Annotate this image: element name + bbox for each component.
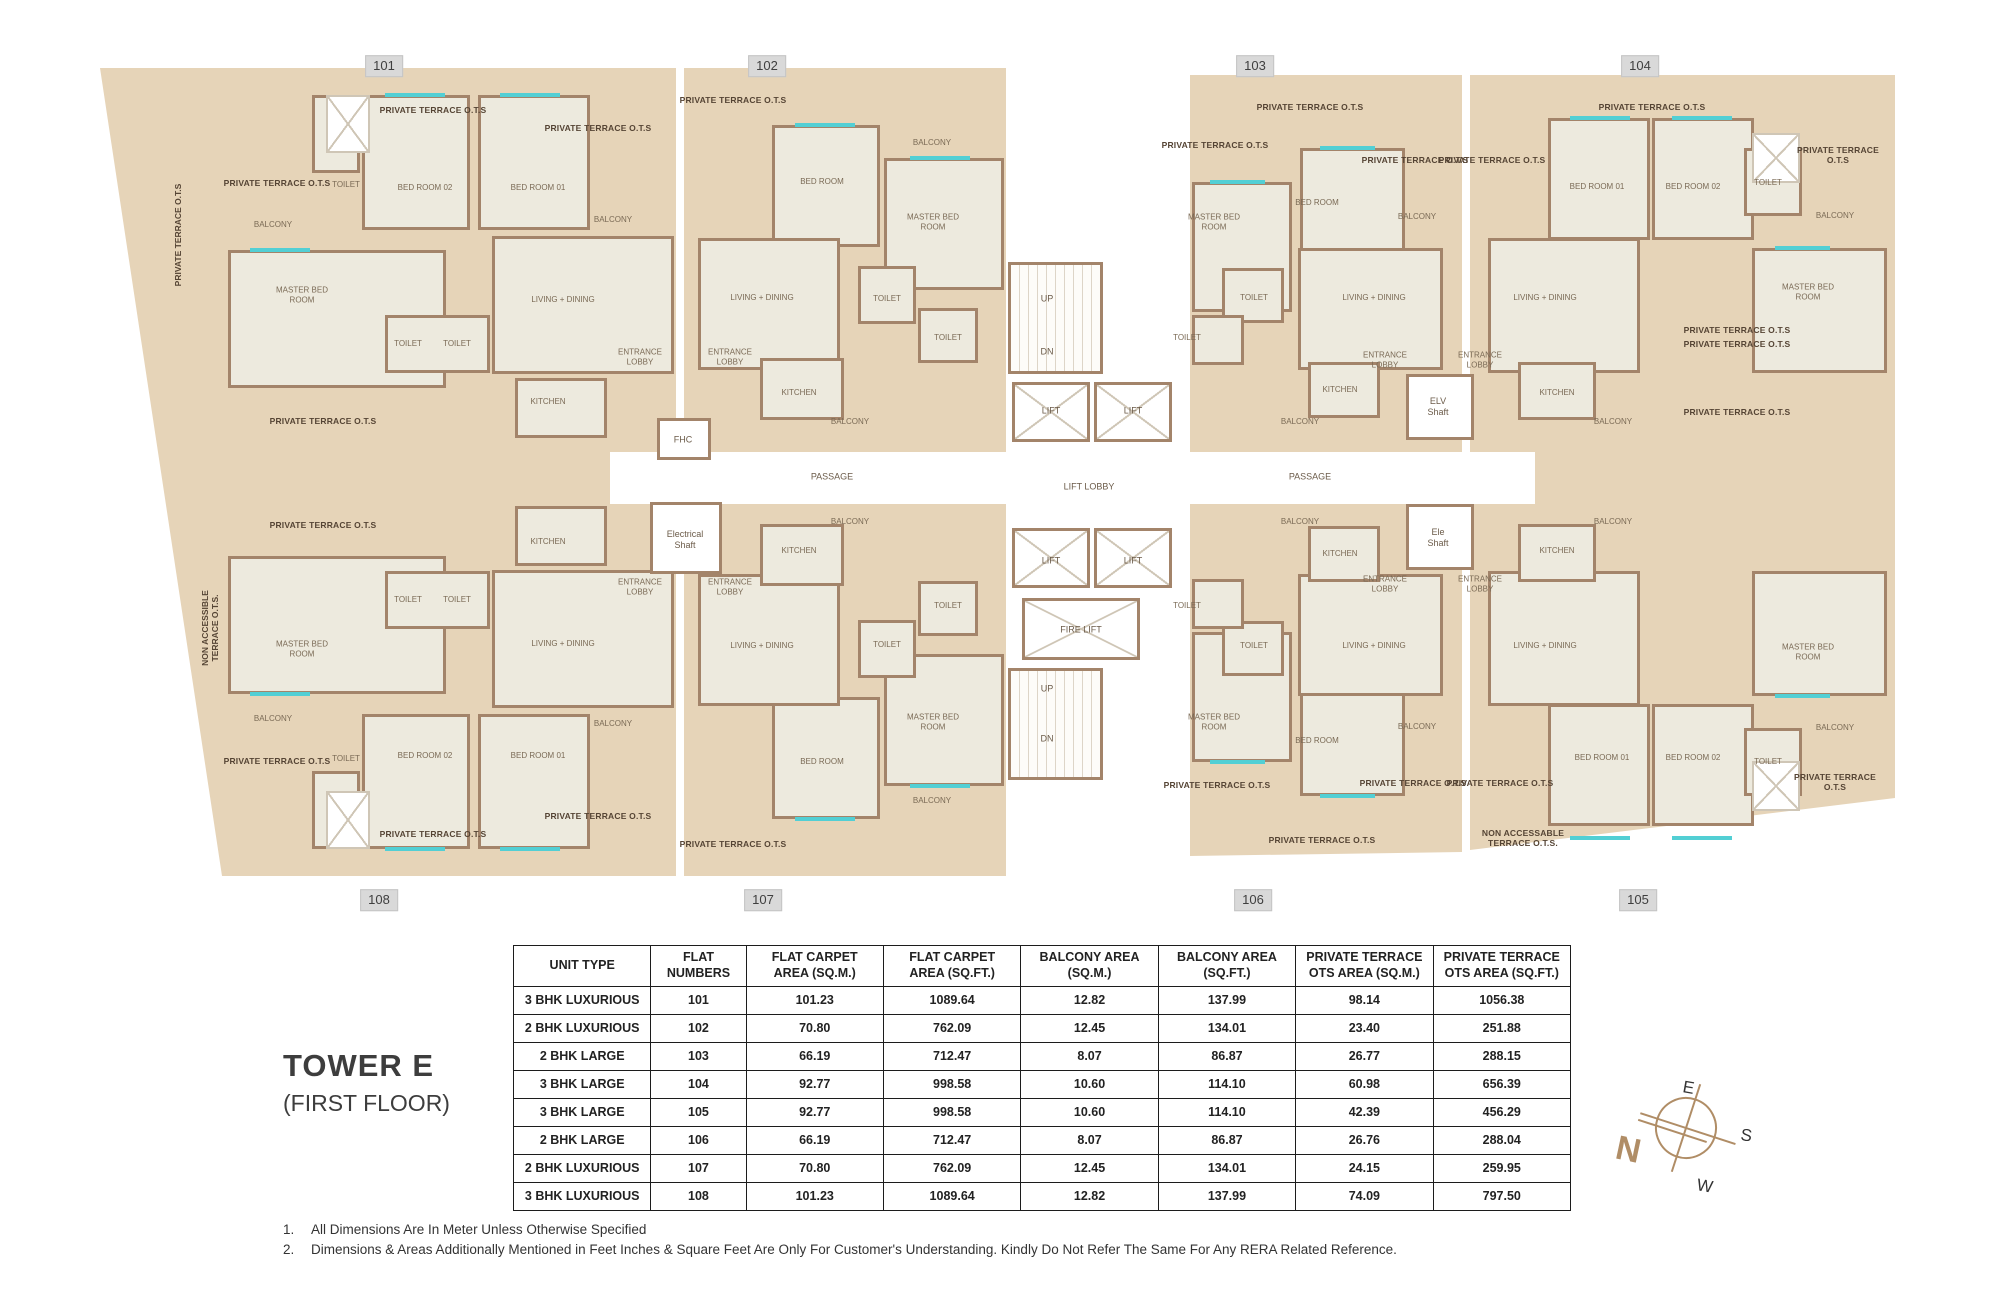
room-label: PRIVATE TERRACE O.T.S bbox=[1439, 155, 1546, 165]
window-strip bbox=[910, 784, 970, 788]
table-cell: 105 bbox=[651, 1099, 746, 1127]
room-label: BED ROOM 01 bbox=[1570, 182, 1625, 192]
table-cell: 797.50 bbox=[1433, 1183, 1570, 1211]
room-label: PRIVATE TERRACE O.T.S bbox=[380, 105, 487, 115]
table-row: 3 BHK LARGE10492.77998.5810.60114.1060.9… bbox=[514, 1071, 1571, 1099]
plan-block bbox=[326, 95, 370, 153]
room-block bbox=[478, 95, 590, 230]
table-cell: 12.45 bbox=[1021, 1155, 1158, 1183]
compass-n: N bbox=[1612, 1129, 1644, 1171]
room-label: MASTER BED ROOM bbox=[1188, 712, 1240, 731]
room-label: LIVING + DINING bbox=[531, 639, 594, 649]
room-label: PRIVATE TERRACE O.T.S bbox=[270, 520, 377, 530]
table-header-cell: FLAT NUMBERS bbox=[651, 946, 746, 987]
room-label: FHC bbox=[674, 435, 693, 446]
room-block bbox=[1652, 704, 1754, 826]
room-label: BALCONY bbox=[594, 719, 632, 729]
flat-number-badge: 108 bbox=[360, 889, 398, 911]
table-cell: 1089.64 bbox=[883, 987, 1020, 1015]
table-cell: 762.09 bbox=[883, 1015, 1020, 1043]
room-label: MASTER BED ROOM bbox=[1782, 642, 1834, 661]
room-label: KITCHEN bbox=[530, 397, 565, 407]
room-label: MASTER BED ROOM bbox=[1188, 212, 1240, 231]
room-label: LIVING + DINING bbox=[1513, 293, 1576, 303]
table-cell: 12.82 bbox=[1021, 987, 1158, 1015]
window-strip bbox=[500, 93, 560, 97]
table-header-cell: FLAT CARPET AREA (SQ.M.) bbox=[746, 946, 883, 987]
table-cell: 26.77 bbox=[1296, 1043, 1433, 1071]
room-label: TOILET bbox=[1754, 757, 1782, 767]
plan-block bbox=[326, 791, 370, 849]
table-body: 3 BHK LUXURIOUS101101.231089.6412.82137.… bbox=[514, 987, 1571, 1211]
room-block bbox=[1548, 118, 1650, 240]
room-label: BALCONY bbox=[831, 417, 869, 427]
table-cell: 998.58 bbox=[883, 1071, 1020, 1099]
table-header-cell: FLAT CARPET AREA (SQ.FT.) bbox=[883, 946, 1020, 987]
footnotes: 1.All Dimensions Are In Meter Unless Oth… bbox=[283, 1222, 1397, 1262]
room-label: MASTER BED ROOM bbox=[276, 639, 328, 658]
room-label: BALCONY bbox=[1594, 517, 1632, 527]
table-cell: 104 bbox=[651, 1071, 746, 1099]
table-cell: 92.77 bbox=[746, 1071, 883, 1099]
footnote: 2.Dimensions & Areas Additionally Mentio… bbox=[283, 1242, 1397, 1257]
table-row: 3 BHK LARGE10592.77998.5810.60114.1042.3… bbox=[514, 1099, 1571, 1127]
room-label: PRIVATE TERRACE O.T.S bbox=[1684, 339, 1791, 349]
window-strip bbox=[1775, 694, 1830, 698]
room-label: MASTER BED ROOM bbox=[907, 712, 959, 731]
flat-number-badge: 101 bbox=[365, 55, 403, 77]
table-cell: 288.04 bbox=[1433, 1127, 1570, 1155]
room-label: PRIVATE TERRACE O.T.S bbox=[680, 839, 787, 849]
room-label: PRIVATE TERRACE O.T.S bbox=[1269, 835, 1376, 845]
window-strip bbox=[795, 123, 855, 127]
room-label: PRIVATE TERRACE O.T.S bbox=[224, 756, 331, 766]
room-block bbox=[515, 378, 607, 438]
table-cell: 2 BHK LARGE bbox=[514, 1043, 651, 1071]
room-label: UP bbox=[1041, 684, 1054, 695]
room-label: BALCONY bbox=[594, 215, 632, 225]
table-cell: 2 BHK LUXURIOUS bbox=[514, 1015, 651, 1043]
room-label: BED ROOM bbox=[1295, 198, 1339, 208]
room-block bbox=[478, 714, 590, 849]
table-cell: 3 BHK LUXURIOUS bbox=[514, 987, 651, 1015]
compass-rose: E S W N bbox=[1598, 1048, 1778, 1218]
room-label: BALCONY bbox=[913, 796, 951, 806]
room-label: FIRE LIFT bbox=[1060, 625, 1102, 636]
table-cell: 259.95 bbox=[1433, 1155, 1570, 1183]
room-label: PRIVATE TERRACE O.T.S bbox=[1599, 102, 1706, 112]
table-cell: 66.19 bbox=[746, 1127, 883, 1155]
room-label: TOILET bbox=[1173, 601, 1201, 611]
table-cell: 86.87 bbox=[1158, 1127, 1295, 1155]
room-label: BALCONY bbox=[1816, 211, 1854, 221]
table-cell: 114.10 bbox=[1158, 1071, 1295, 1099]
table-cell: 103 bbox=[651, 1043, 746, 1071]
window-strip bbox=[1570, 116, 1630, 120]
table-cell: 3 BHK LUXURIOUS bbox=[514, 1183, 651, 1211]
table-header-cell: PRIVATE TERRACE OTS AREA (SQ.M.) bbox=[1296, 946, 1433, 987]
room-label: ENTRANCE LOBBY bbox=[618, 577, 662, 596]
room-label: UP bbox=[1041, 294, 1054, 305]
table-cell: 12.82 bbox=[1021, 1183, 1158, 1211]
room-label: MASTER BED ROOM bbox=[276, 285, 328, 304]
table-cell: 106 bbox=[651, 1127, 746, 1155]
room-label: PRIVATE TERRACE O.T.S bbox=[680, 95, 787, 105]
table-header-cell: UNIT TYPE bbox=[514, 946, 651, 987]
room-block bbox=[1652, 118, 1754, 240]
room-label: DN bbox=[1041, 347, 1054, 358]
room-label: ENTRANCE LOBBY bbox=[1363, 574, 1407, 593]
window-strip bbox=[1210, 760, 1265, 764]
table-cell: 24.15 bbox=[1296, 1155, 1433, 1183]
room-label: TOILET bbox=[332, 754, 360, 764]
compass-w: W bbox=[1695, 1175, 1714, 1196]
room-label: BED ROOM bbox=[800, 757, 844, 767]
room-label: ENTRANCE LOBBY bbox=[618, 347, 662, 366]
room-label: BED ROOM bbox=[1295, 736, 1339, 746]
room-label: TOILET bbox=[873, 640, 901, 650]
room-label: BALCONY bbox=[1281, 517, 1319, 527]
table-row: 2 BHK LARGE10366.19712.478.0786.8726.772… bbox=[514, 1043, 1571, 1071]
room-label: PRIVATE TERRACE O.T.S bbox=[1164, 780, 1271, 790]
room-label: PRIVATE TERRACE O.T.S bbox=[545, 811, 652, 821]
room-label: Ele Shaft bbox=[1427, 527, 1448, 549]
table-cell: 3 BHK LARGE bbox=[514, 1071, 651, 1099]
window-strip bbox=[500, 847, 560, 851]
room-label: KITCHEN bbox=[530, 537, 565, 547]
floor-plan: PRIVATE TERRACE O.T.SPRIVATE TERRACE O.T… bbox=[0, 0, 2000, 960]
flat-number-badge: 105 bbox=[1619, 889, 1657, 911]
table-cell: 134.01 bbox=[1158, 1015, 1295, 1043]
room-label: LIFT bbox=[1124, 556, 1143, 567]
floor-subtitle: (FIRST FLOOR) bbox=[283, 1090, 450, 1117]
room-label: PRIVATE TERRACE O.T.S bbox=[1447, 778, 1554, 788]
room-label: TOILET bbox=[1240, 641, 1268, 651]
table-row: 3 BHK LUXURIOUS108101.231089.6412.82137.… bbox=[514, 1183, 1571, 1211]
window-strip bbox=[1672, 116, 1732, 120]
table-cell: 98.14 bbox=[1296, 987, 1433, 1015]
staircase bbox=[1008, 262, 1103, 374]
table-cell: 108 bbox=[651, 1183, 746, 1211]
room-label: TOILET bbox=[332, 180, 360, 190]
table-cell: 92.77 bbox=[746, 1099, 883, 1127]
window-strip bbox=[250, 692, 310, 696]
table-cell: 74.09 bbox=[1296, 1183, 1433, 1211]
table-cell: 8.07 bbox=[1021, 1127, 1158, 1155]
table-cell: 1056.38 bbox=[1433, 987, 1570, 1015]
room-label: LIFT bbox=[1042, 406, 1061, 417]
room-label: PRIVATE TERRACE O.T.S bbox=[270, 416, 377, 426]
room-label: BALCONY bbox=[1398, 212, 1436, 222]
table-header-cell: PRIVATE TERRACE OTS AREA (SQ.FT.) bbox=[1433, 946, 1570, 987]
room-label: ENTRANCE LOBBY bbox=[1458, 350, 1502, 369]
table-cell: 2 BHK LARGE bbox=[514, 1127, 651, 1155]
table-cell: 456.29 bbox=[1433, 1099, 1570, 1127]
plan-block bbox=[1752, 133, 1800, 183]
room-block bbox=[362, 95, 470, 230]
table-cell: 2 BHK LUXURIOUS bbox=[514, 1155, 651, 1183]
room-label: PRIVATE TERRACE O.T.S bbox=[224, 178, 331, 188]
room-label: NON ACCESSABLE TERRACE O.T.S. bbox=[1482, 828, 1564, 848]
room-block bbox=[515, 506, 607, 566]
table-cell: 712.47 bbox=[883, 1043, 1020, 1071]
room-label: ELV Shaft bbox=[1427, 396, 1448, 418]
table-cell: 1089.64 bbox=[883, 1183, 1020, 1211]
room-label: PASSAGE bbox=[1289, 472, 1331, 483]
table-header-cell: BALCONY AREA (SQ.M.) bbox=[1021, 946, 1158, 987]
table-cell: 23.40 bbox=[1296, 1015, 1433, 1043]
table-cell: 251.88 bbox=[1433, 1015, 1570, 1043]
table-cell: 60.98 bbox=[1296, 1071, 1433, 1099]
table-cell: 137.99 bbox=[1158, 987, 1295, 1015]
flat-number-badge: 103 bbox=[1236, 55, 1274, 77]
table-cell: 70.80 bbox=[746, 1015, 883, 1043]
room-label: PRIVATE TERRACE O.T.S bbox=[173, 184, 183, 287]
room-block bbox=[1488, 238, 1640, 373]
window-strip bbox=[385, 847, 445, 851]
table-row: 2 BHK LUXURIOUS10270.80762.0912.45134.01… bbox=[514, 1015, 1571, 1043]
room-label: TOILET bbox=[394, 339, 422, 349]
room-label: KITCHEN bbox=[781, 388, 816, 398]
table-cell: 26.76 bbox=[1296, 1127, 1433, 1155]
room-label: BALCONY bbox=[831, 517, 869, 527]
table-cell: 70.80 bbox=[746, 1155, 883, 1183]
compass-s: S bbox=[1739, 1125, 1753, 1145]
room-label: BED ROOM 02 bbox=[1666, 182, 1721, 192]
room-label: LIVING + DINING bbox=[730, 641, 793, 651]
room-label: BED ROOM 02 bbox=[398, 751, 453, 761]
table-cell: 12.45 bbox=[1021, 1015, 1158, 1043]
window-strip bbox=[1320, 146, 1375, 150]
room-label: LIVING + DINING bbox=[531, 295, 594, 305]
room-block bbox=[1488, 571, 1640, 706]
window-strip bbox=[910, 156, 970, 160]
window-strip bbox=[1210, 180, 1265, 184]
window-strip bbox=[1672, 836, 1732, 840]
unit-area-table: UNIT TYPEFLAT NUMBERSFLAT CARPET AREA (S… bbox=[513, 945, 1571, 1211]
room-label: TOILET bbox=[873, 294, 901, 304]
room-label: PRIVATE TERRACE O.T.S bbox=[1257, 102, 1364, 112]
room-label: LIFT bbox=[1124, 406, 1143, 417]
table-cell: 114.10 bbox=[1158, 1099, 1295, 1127]
room-block bbox=[1752, 248, 1887, 373]
plan-block bbox=[1752, 761, 1800, 811]
room-label: LIVING + DINING bbox=[730, 293, 793, 303]
room-label: BALCONY bbox=[254, 220, 292, 230]
room-label: BED ROOM 01 bbox=[511, 751, 566, 761]
table-header-cell: BALCONY AREA (SQ.FT.) bbox=[1158, 946, 1295, 987]
room-label: TOILET bbox=[934, 601, 962, 611]
room-label: TOILET bbox=[1240, 293, 1268, 303]
room-label: MASTER BED ROOM bbox=[907, 212, 959, 231]
table-row: 2 BHK LARGE10666.19712.478.0786.8726.762… bbox=[514, 1127, 1571, 1155]
flat-number-badge: 106 bbox=[1234, 889, 1272, 911]
room-label: TOILET bbox=[1754, 178, 1782, 188]
room-label: LIFT bbox=[1042, 556, 1061, 567]
window-strip bbox=[1775, 246, 1830, 250]
table-cell: 102 bbox=[651, 1015, 746, 1043]
table-header: UNIT TYPEFLAT NUMBERSFLAT CARPET AREA (S… bbox=[514, 946, 1571, 987]
room-label: PASSAGE bbox=[811, 472, 853, 483]
table-cell: 712.47 bbox=[883, 1127, 1020, 1155]
room-label: BED ROOM 01 bbox=[1575, 753, 1630, 763]
table-cell: 134.01 bbox=[1158, 1155, 1295, 1183]
room-label: KITCHEN bbox=[1539, 546, 1574, 556]
table-cell: 42.39 bbox=[1296, 1099, 1433, 1127]
floor-plan-sheet: PRIVATE TERRACE O.T.SPRIVATE TERRACE O.T… bbox=[0, 0, 2000, 1300]
room-label: BALCONY bbox=[913, 138, 951, 148]
table-cell: 86.87 bbox=[1158, 1043, 1295, 1071]
room-label: TOILET bbox=[443, 595, 471, 605]
room-label: BALCONY bbox=[254, 714, 292, 724]
room-label: Electrical Shaft bbox=[667, 529, 704, 551]
table-cell: 3 BHK LARGE bbox=[514, 1099, 651, 1127]
table-cell: 66.19 bbox=[746, 1043, 883, 1071]
footnote: 1.All Dimensions Are In Meter Unless Oth… bbox=[283, 1222, 1397, 1237]
flat-number-badge: 102 bbox=[748, 55, 786, 77]
room-label: BED ROOM 02 bbox=[1666, 753, 1721, 763]
table-cell: 101.23 bbox=[746, 987, 883, 1015]
room-label: PRIVATE TERRACE O.T.S bbox=[1684, 325, 1791, 335]
room-label: ENTRANCE LOBBY bbox=[1363, 350, 1407, 369]
room-label: BED ROOM 02 bbox=[398, 183, 453, 193]
table-row: 3 BHK LUXURIOUS101101.231089.6412.82137.… bbox=[514, 987, 1571, 1015]
table-cell: 101 bbox=[651, 987, 746, 1015]
room-label: BALCONY bbox=[1281, 417, 1319, 427]
room-label: PRIVATE TERRACE O.T.S bbox=[545, 123, 652, 133]
room-label: PRIVATE TERRACE O.T.S bbox=[1162, 140, 1269, 150]
room-label: NON ACCESSIBLE TERRACE O.T.S. bbox=[200, 590, 220, 666]
room-label: TOILET bbox=[394, 595, 422, 605]
plan-block bbox=[1190, 452, 1535, 504]
title-block: TOWER E (FIRST FLOOR) bbox=[283, 1048, 450, 1117]
window-strip bbox=[250, 248, 310, 252]
room-label: KITCHEN bbox=[781, 546, 816, 556]
room-block bbox=[1548, 704, 1650, 826]
table-cell: 762.09 bbox=[883, 1155, 1020, 1183]
table-cell: 101.23 bbox=[746, 1183, 883, 1211]
room-label: KITCHEN bbox=[1322, 385, 1357, 395]
room-label: BALCONY bbox=[1594, 417, 1632, 427]
room-label: ENTRANCE LOBBY bbox=[708, 347, 752, 366]
room-label: PRIVATE TERRACE O.T.S bbox=[1684, 407, 1791, 417]
window-strip bbox=[1320, 794, 1375, 798]
room-label: LIFT LOBBY bbox=[1064, 482, 1115, 493]
window-strip bbox=[385, 93, 445, 97]
room-block bbox=[1752, 571, 1887, 696]
room-label: ENTRANCE LOBBY bbox=[1458, 574, 1502, 593]
table-cell: 8.07 bbox=[1021, 1043, 1158, 1071]
room-label: KITCHEN bbox=[1539, 388, 1574, 398]
room-label: BALCONY bbox=[1398, 722, 1436, 732]
table-cell: 998.58 bbox=[883, 1099, 1020, 1127]
table-row: 2 BHK LUXURIOUS10770.80762.0912.45134.01… bbox=[514, 1155, 1571, 1183]
room-label: DN bbox=[1041, 734, 1054, 745]
room-label: PRIVATE TERRACE O.T.S bbox=[1794, 772, 1876, 792]
room-label: LIVING + DINING bbox=[1342, 293, 1405, 303]
room-label: BED ROOM 01 bbox=[511, 183, 566, 193]
staircase bbox=[1008, 668, 1103, 780]
table-cell: 656.39 bbox=[1433, 1071, 1570, 1099]
table-cell: 137.99 bbox=[1158, 1183, 1295, 1211]
room-label: PRIVATE TERRACE O.T.S bbox=[380, 829, 487, 839]
window-strip bbox=[1570, 836, 1630, 840]
room-label: BED ROOM bbox=[800, 177, 844, 187]
compass-e: E bbox=[1681, 1077, 1695, 1098]
table-cell: 10.60 bbox=[1021, 1071, 1158, 1099]
room-label: TOILET bbox=[443, 339, 471, 349]
flat-number-badge: 107 bbox=[744, 889, 782, 911]
tower-title: TOWER E bbox=[283, 1048, 450, 1084]
flat-number-badge: 104 bbox=[1621, 55, 1659, 77]
room-label: KITCHEN bbox=[1322, 549, 1357, 559]
room-label: TOILET bbox=[1173, 333, 1201, 343]
room-label: BALCONY bbox=[1816, 723, 1854, 733]
room-label: ENTRANCE LOBBY bbox=[708, 577, 752, 596]
window-strip bbox=[795, 817, 855, 821]
table-cell: 107 bbox=[651, 1155, 746, 1183]
room-label: MASTER BED ROOM bbox=[1782, 282, 1834, 301]
room-label: LIVING + DINING bbox=[1513, 641, 1576, 651]
room-label: PRIVATE TERRACE O.T.S bbox=[1797, 145, 1879, 165]
table-cell: 288.15 bbox=[1433, 1043, 1570, 1071]
table-cell: 10.60 bbox=[1021, 1099, 1158, 1127]
room-label: TOILET bbox=[934, 333, 962, 343]
room-label: LIVING + DINING bbox=[1342, 641, 1405, 651]
